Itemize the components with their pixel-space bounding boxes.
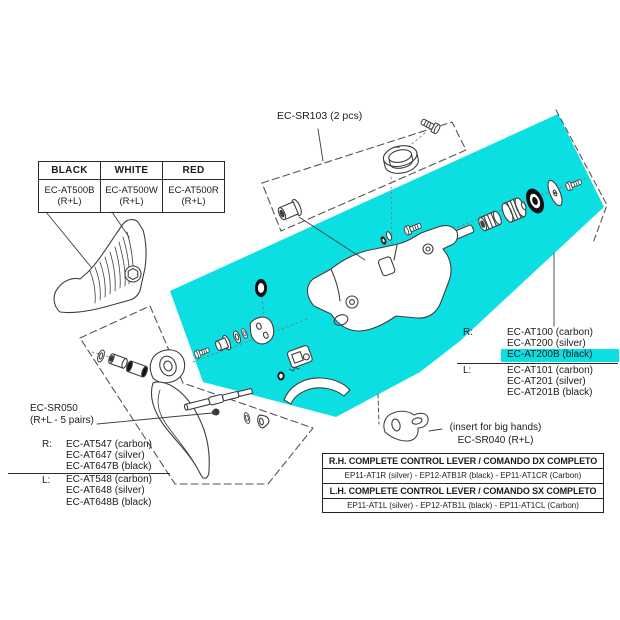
hinge-bushing-part <box>276 198 303 222</box>
left-list-l-items: EC-AT548 (carbon) EC-AT648 (silver) EC-A… <box>66 474 152 508</box>
dome-nut-part <box>256 413 270 428</box>
sr050-label-line1: EC-SR050 <box>30 403 94 415</box>
part-item-highlighted: EC-AT200B (black) <box>507 349 593 360</box>
cell-red: EC-AT500R (R+L) <box>163 180 225 213</box>
blade-bushing-part <box>108 353 129 369</box>
part-code: EC-AT500R <box>164 185 223 196</box>
parts-diagram-page: BLACK WHITE RED EC-AT500B (R+L) EC-AT500… <box>0 0 620 620</box>
part-item: EC-AT200 (silver) <box>507 338 593 349</box>
hood-color-table-header-row: BLACK WHITE RED <box>39 162 225 180</box>
left-list-r-marker: R: <box>42 439 52 450</box>
right-list-l-marker: L: <box>463 365 471 376</box>
complete-lever-table: R.H. COMPLETE CONTROL LEVER / COMANDO DX… <box>322 453 604 513</box>
part-item: EC-AT101 (carbon) <box>507 365 593 376</box>
col-header-white: WHITE <box>101 162 163 180</box>
col-header-red: RED <box>163 162 225 180</box>
cell-white: EC-AT500W (R+L) <box>101 180 163 213</box>
brake-lever-blade <box>151 382 209 478</box>
insert-label-line2: EC-SR040 (R+L) <box>428 435 563 448</box>
sr050-label: EC-SR050 (R+L - 5 pairs) <box>30 403 94 427</box>
sr103-label: EC-SR103 (2 pcs) <box>277 110 362 122</box>
part-item: EC-AT100 (carbon) <box>507 327 593 338</box>
lever-table-row-lh-title: L.H. COMPLETE CONTROL LEVER / COMANDO SX… <box>323 483 603 498</box>
pin-washer-part <box>243 412 251 424</box>
right-list-r-items: EC-AT100 (carbon) EC-AT200 (silver) EC-A… <box>507 327 593 361</box>
exploded-lever-diagram <box>0 0 620 620</box>
part-suffix: (R+L) <box>164 196 223 207</box>
hood-cover-sketch <box>54 220 146 313</box>
part-item: EC-AT647 (silver) <box>66 450 152 461</box>
clamp-band-part <box>381 143 420 176</box>
part-item: EC-AT548 (carbon) <box>66 474 152 485</box>
blade-washer-part <box>96 349 106 363</box>
part-suffix: (R+L) <box>102 196 161 207</box>
part-item: EC-AT647B (black) <box>66 461 152 472</box>
right-list-l-items: EC-AT101 (carbon) EC-AT201 (silver) EC-A… <box>507 365 593 399</box>
lever-table-row-rh-title: R.H. COMPLETE CONTROL LEVER / COMANDO DX… <box>323 454 603 468</box>
sr050-label-line2: (R+L - 5 pairs) <box>30 415 94 427</box>
bearing-ring-part <box>256 280 267 297</box>
left-list-l-marker: L: <box>42 475 50 486</box>
part-item: EC-AT648 (silver) <box>66 485 152 496</box>
insert-label: (insert for big hands) EC-SR040 (R+L) <box>428 422 563 447</box>
left-list-r-items: EC-AT547 (carbon) EC-AT647 (silver) EC-A… <box>66 439 152 473</box>
hood-color-table: BLACK WHITE RED EC-AT500B (R+L) EC-AT500… <box>38 161 225 213</box>
blade-axle-pin <box>184 387 253 412</box>
part-code: EC-AT500W <box>102 185 161 196</box>
part-item: EC-AT648B (black) <box>66 497 152 508</box>
hood-color-table-body-row: EC-AT500B (R+L) EC-AT500W (R+L) EC-AT500… <box>39 180 225 213</box>
part-item: EC-AT547 (carbon) <box>66 439 152 450</box>
insert-part-sketch <box>384 411 428 441</box>
blade-pin-bushing-part <box>125 360 148 377</box>
part-suffix: (R+L) <box>40 196 99 207</box>
right-list-r-marker: R: <box>463 327 473 338</box>
cell-black: EC-AT500B (R+L) <box>39 180 101 213</box>
part-code: EC-AT500B <box>40 185 99 196</box>
lever-table-row-lh-codes: EP11-AT1L (silver) - EP12-ATB1L (black) … <box>323 498 603 513</box>
part-item: EC-AT201B (black) <box>507 387 593 398</box>
lever-table-row-rh-codes: EP11-AT1R (silver) - EP12-ATB1R (black) … <box>323 468 603 483</box>
small-ring-part <box>278 372 284 380</box>
col-header-black: BLACK <box>39 162 101 180</box>
insert-label-line1: (insert for big hands) <box>428 422 563 435</box>
part-item: EC-AT201 (silver) <box>507 376 593 387</box>
